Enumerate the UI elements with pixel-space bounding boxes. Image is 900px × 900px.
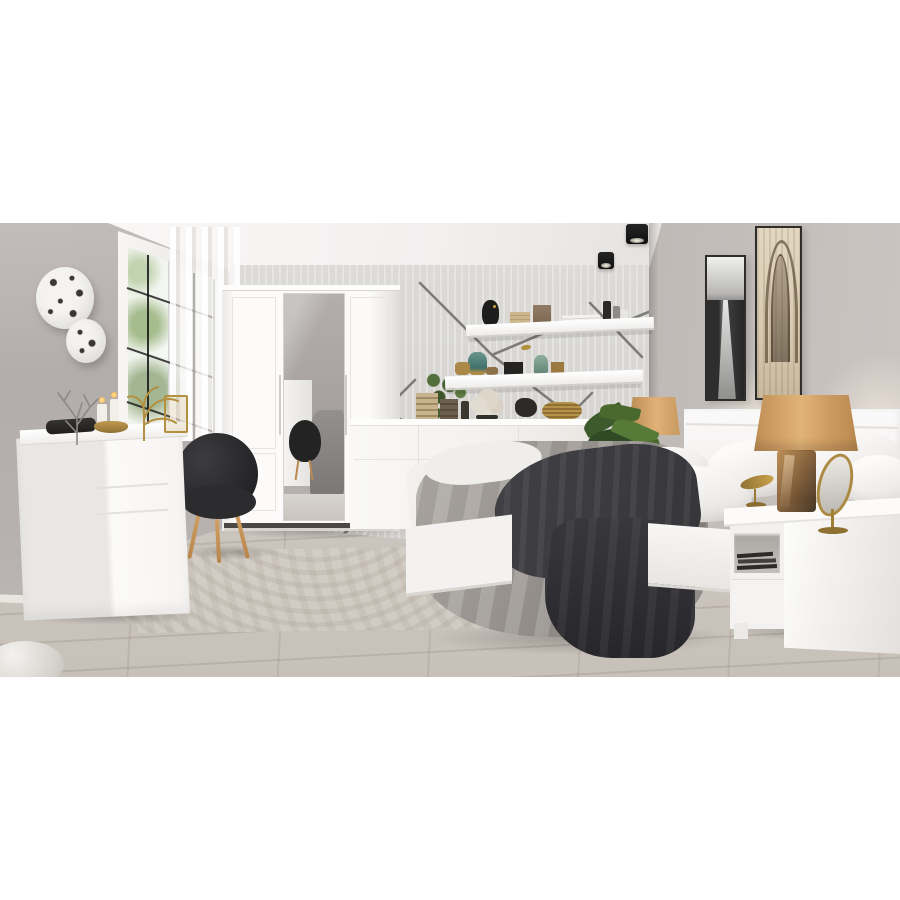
chair-shadow (185, 545, 277, 560)
decor-book-stack (416, 393, 438, 419)
wardrobe-handle (345, 375, 347, 435)
shelf-item-gold-jar (455, 362, 470, 375)
artwork-texture (757, 228, 800, 398)
vanity-mirror-base (818, 527, 848, 534)
candle-flame (99, 397, 105, 403)
gold-bowl (94, 421, 128, 433)
wardrobe-mirror-door (283, 293, 345, 521)
decor-black-stone (515, 398, 537, 417)
decor-gold-basket (542, 402, 582, 420)
ceiling-spotlight (626, 224, 648, 244)
miniature-gold-chair (164, 395, 188, 433)
gold-bird-stem (754, 489, 756, 503)
silver-coral-ornament (52, 389, 102, 445)
sideboard-top (350, 419, 594, 426)
wardrobe-cornice (222, 285, 400, 291)
candle-flame (111, 392, 117, 398)
artwork-bw-canyon (705, 255, 746, 401)
chair-seat (182, 485, 256, 519)
white-coral-ornament (468, 385, 504, 419)
ceiling-spotlight (598, 252, 614, 269)
decor-book-stack (440, 399, 458, 419)
wardrobe-door-panel (232, 297, 276, 449)
mirror-sheen (284, 294, 344, 520)
head-sculpture (482, 300, 499, 326)
dresser (16, 431, 190, 620)
wall-plate (66, 319, 106, 363)
bed-frame-foot (406, 514, 512, 596)
shelf-item-teal-vase (468, 352, 487, 375)
nightstand-leg (734, 623, 748, 639)
vanity-mirror-stem (831, 509, 834, 529)
bedroom-photo (0, 223, 900, 677)
artwork-sepia-arch (755, 226, 802, 400)
nightstand-drawer (732, 579, 784, 624)
artwork-sky (707, 257, 744, 302)
wardrobe-handle (279, 375, 281, 435)
screenshot-canvas (0, 0, 900, 900)
table-lamp-right (754, 395, 858, 451)
